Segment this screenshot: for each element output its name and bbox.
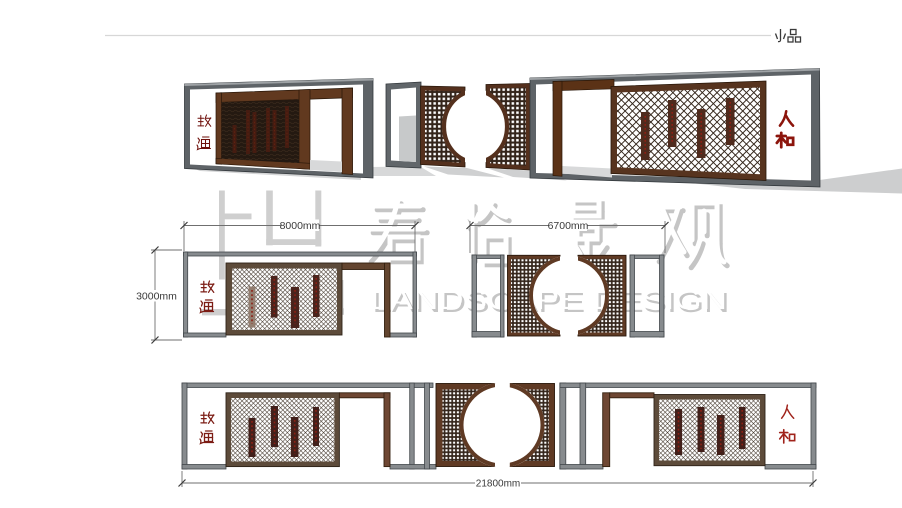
svg-text:8000mm: 8000mm <box>280 220 321 232</box>
svg-text:3000mm: 3000mm <box>136 291 177 303</box>
svg-text:21800mm: 21800mm <box>476 479 520 490</box>
svg-text:6700mm: 6700mm <box>548 220 589 232</box>
